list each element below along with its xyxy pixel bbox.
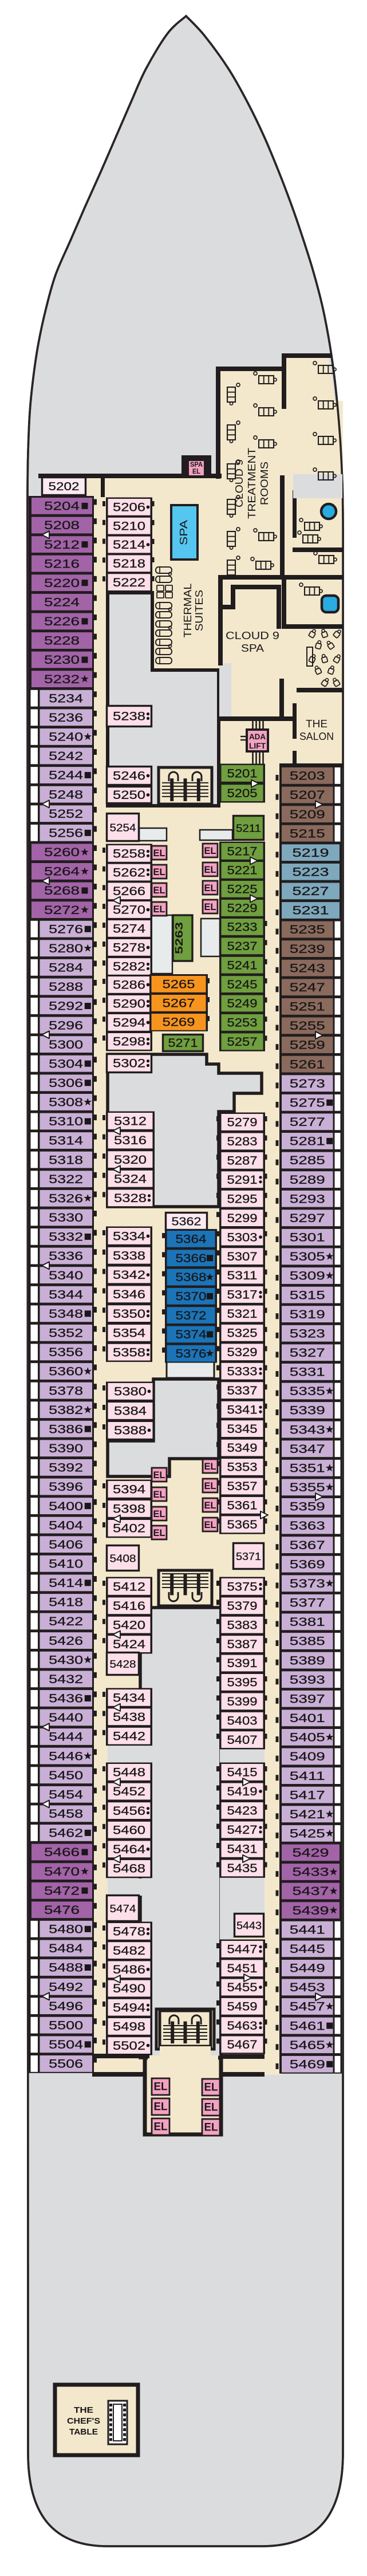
svg-text:5431: 5431 (227, 1843, 258, 1856)
svg-text:5241: 5241 (227, 959, 258, 972)
svg-text:5208: 5208 (44, 519, 80, 532)
svg-text:5284: 5284 (49, 962, 83, 975)
svg-text:5303: 5303 (227, 1231, 258, 1244)
svg-text:5220: 5220 (44, 577, 80, 590)
svg-text:5421: 5421 (290, 1808, 325, 1821)
svg-text:5232: 5232 (44, 673, 80, 686)
svg-text:5304: 5304 (49, 1057, 83, 1070)
svg-text:5316: 5316 (114, 1134, 147, 1147)
svg-text:5453: 5453 (290, 1981, 325, 1994)
svg-text:5490: 5490 (113, 1982, 145, 1995)
svg-text:5457: 5457 (290, 2000, 325, 2014)
svg-text:5202: 5202 (49, 480, 80, 493)
svg-text:5422: 5422 (49, 1615, 83, 1628)
svg-text:5231: 5231 (293, 904, 329, 917)
svg-text:5409: 5409 (290, 1750, 325, 1763)
svg-text:5325: 5325 (227, 1327, 258, 1340)
svg-text:EL: EL (192, 468, 200, 475)
svg-text:5263: 5263 (173, 922, 185, 954)
svg-text:5273: 5273 (290, 1077, 325, 1090)
svg-text:5314: 5314 (49, 1135, 83, 1148)
svg-text:5430: 5430 (49, 1653, 83, 1667)
svg-text:5496: 5496 (49, 2000, 83, 2013)
svg-text:5454: 5454 (49, 1789, 83, 1802)
svg-text:5350: 5350 (113, 1307, 145, 1321)
svg-text:THE: THE (306, 718, 327, 730)
svg-text:5207: 5207 (290, 789, 325, 802)
svg-text:5320: 5320 (114, 1153, 147, 1167)
svg-text:5261: 5261 (290, 1058, 325, 1071)
svg-text:5328: 5328 (114, 1192, 147, 1205)
svg-text:EL: EL (204, 2082, 218, 2094)
svg-text:5250: 5250 (113, 789, 145, 802)
svg-text:5214: 5214 (113, 538, 145, 552)
svg-text:5432: 5432 (49, 1673, 83, 1686)
svg-text:5271: 5271 (168, 1037, 198, 1050)
svg-text:CLOUD 9: CLOUD 9 (226, 630, 279, 641)
svg-text:5385: 5385 (290, 1635, 325, 1648)
svg-text:5283: 5283 (227, 1135, 258, 1148)
svg-text:5330: 5330 (49, 1211, 83, 1224)
svg-text:5500: 5500 (49, 2019, 83, 2032)
svg-text:5404: 5404 (49, 1519, 83, 1532)
svg-text:5229: 5229 (227, 902, 258, 915)
svg-text:5338: 5338 (113, 1249, 145, 1262)
svg-text:5438: 5438 (113, 1711, 145, 1724)
svg-text:5302: 5302 (113, 1057, 145, 1070)
svg-text:5312: 5312 (114, 1115, 147, 1128)
svg-text:EL: EL (153, 1509, 165, 1519)
svg-text:5275: 5275 (290, 1097, 325, 1110)
svg-text:5465: 5465 (290, 2039, 325, 2052)
svg-text:5242: 5242 (49, 750, 83, 763)
svg-text:EL: EL (153, 1528, 165, 1538)
svg-text:5345: 5345 (227, 1423, 258, 1436)
svg-text:5223: 5223 (293, 866, 329, 879)
svg-text:5221: 5221 (227, 864, 258, 877)
svg-text:5268: 5268 (44, 884, 80, 897)
svg-text:5297: 5297 (290, 1212, 325, 1225)
svg-text:5484: 5484 (49, 1942, 83, 1955)
svg-text:5451: 5451 (227, 1962, 258, 1975)
svg-text:5279: 5279 (227, 1116, 258, 1129)
svg-text:5311: 5311 (227, 1269, 258, 1282)
svg-text:5356: 5356 (49, 1346, 83, 1359)
svg-text:5480: 5480 (49, 1923, 83, 1936)
svg-text:5247: 5247 (290, 981, 325, 994)
svg-text:5348: 5348 (49, 1307, 83, 1321)
svg-text:5280: 5280 (49, 942, 83, 955)
svg-text:5368: 5368 (176, 1271, 207, 1284)
svg-text:5352: 5352 (49, 1327, 83, 1340)
svg-text:5375: 5375 (227, 1581, 258, 1594)
svg-text:5354: 5354 (113, 1327, 145, 1340)
svg-text:5244: 5244 (49, 769, 83, 782)
svg-text:5216: 5216 (44, 557, 80, 570)
svg-text:5309: 5309 (290, 1270, 325, 1283)
svg-text:THE: THE (74, 2405, 93, 2415)
svg-text:5266: 5266 (113, 885, 145, 898)
svg-text:5486: 5486 (113, 1963, 145, 1976)
svg-text:5391: 5391 (227, 1657, 258, 1670)
svg-text:5327: 5327 (290, 1346, 325, 1360)
svg-text:5288: 5288 (49, 980, 83, 994)
svg-text:5267: 5267 (163, 997, 195, 1010)
svg-text:5225: 5225 (227, 883, 258, 896)
svg-text:EL: EL (153, 904, 165, 915)
svg-text:5341: 5341 (227, 1403, 258, 1416)
svg-text:5452: 5452 (113, 1785, 145, 1798)
svg-text:5228: 5228 (44, 635, 80, 648)
svg-text:5344: 5344 (49, 1288, 83, 1301)
svg-text:5321: 5321 (227, 1307, 258, 1321)
svg-text:5317: 5317 (227, 1289, 258, 1302)
svg-text:5397: 5397 (290, 1692, 325, 1705)
svg-text:5420: 5420 (113, 1618, 145, 1632)
svg-text:5502: 5502 (113, 2039, 145, 2053)
svg-text:5389: 5389 (290, 1654, 325, 1667)
svg-text:EL: EL (154, 2101, 168, 2113)
svg-text:5333: 5333 (227, 1365, 258, 1378)
svg-text:5351: 5351 (290, 1462, 325, 1475)
svg-text:5265: 5265 (163, 978, 195, 991)
svg-text:5332: 5332 (49, 1231, 83, 1244)
svg-text:THERMAL: THERMAL (182, 584, 194, 638)
svg-text:5426: 5426 (49, 1634, 83, 1648)
svg-text:5504: 5504 (49, 2038, 83, 2051)
svg-text:5353: 5353 (227, 1461, 258, 1474)
svg-text:5340: 5340 (49, 1269, 83, 1282)
svg-text:5298: 5298 (113, 1035, 145, 1049)
svg-text:5238: 5238 (113, 710, 145, 723)
svg-text:5436: 5436 (49, 1692, 83, 1705)
svg-text:5373: 5373 (290, 1577, 325, 1590)
svg-text:5230: 5230 (44, 653, 80, 667)
svg-text:EL: EL (204, 1481, 216, 1491)
svg-text:5274: 5274 (113, 923, 145, 936)
svg-text:5355: 5355 (290, 1481, 325, 1494)
svg-text:5318: 5318 (49, 1153, 83, 1167)
svg-text:5433: 5433 (293, 1866, 329, 1879)
svg-text:5437: 5437 (293, 1885, 329, 1898)
svg-text:5260: 5260 (44, 846, 80, 859)
svg-text:5377: 5377 (290, 1597, 325, 1610)
svg-text:5276: 5276 (49, 923, 83, 936)
svg-text:TREATMENT: TREATMENT (246, 448, 258, 519)
svg-text:5468: 5468 (113, 1862, 145, 1876)
svg-text:5335: 5335 (290, 1385, 325, 1398)
svg-text:5364: 5364 (176, 1233, 207, 1246)
svg-text:5408: 5408 (110, 1553, 136, 1565)
svg-text:5427: 5427 (227, 1823, 258, 1837)
svg-text:5482: 5482 (113, 1944, 145, 1957)
svg-text:5494: 5494 (113, 2001, 145, 2014)
svg-text:5441: 5441 (290, 1923, 325, 1936)
svg-text:5374: 5374 (176, 1328, 207, 1341)
svg-text:EL: EL (153, 867, 165, 877)
svg-text:5336: 5336 (49, 1250, 83, 1263)
svg-text:5349: 5349 (227, 1441, 258, 1455)
svg-text:5428: 5428 (110, 1659, 136, 1670)
svg-text:5210: 5210 (113, 519, 145, 533)
svg-text:5222: 5222 (113, 576, 145, 589)
svg-text:5384: 5384 (114, 1405, 147, 1418)
svg-text:EL: EL (204, 1520, 216, 1530)
svg-text:5396: 5396 (49, 1480, 83, 1494)
svg-text:5467: 5467 (227, 2038, 258, 2051)
svg-text:5315: 5315 (290, 1289, 325, 1302)
svg-text:5376: 5376 (176, 1347, 207, 1360)
svg-text:5492: 5492 (49, 1980, 83, 1994)
svg-text:EL: EL (204, 902, 216, 912)
svg-text:5227: 5227 (293, 885, 329, 898)
svg-text:EL: EL (204, 1462, 216, 1472)
svg-text:5209: 5209 (290, 808, 325, 821)
svg-text:5392: 5392 (49, 1462, 83, 1475)
svg-text:TABLE: TABLE (69, 2427, 98, 2437)
svg-text:5464: 5464 (113, 1843, 145, 1856)
svg-text:SPA: SPA (241, 643, 264, 654)
svg-text:EL: EL (153, 1490, 165, 1500)
svg-text:5425: 5425 (290, 1827, 325, 1841)
svg-text:5378: 5378 (49, 1384, 83, 1397)
svg-text:5285: 5285 (290, 1154, 325, 1167)
svg-text:5388: 5388 (114, 1424, 147, 1437)
svg-text:5291: 5291 (227, 1173, 258, 1187)
svg-text:EL: EL (153, 1470, 165, 1480)
svg-text:5206: 5206 (113, 501, 145, 514)
svg-text:5476: 5476 (44, 1904, 80, 1917)
svg-text:5446: 5446 (49, 1750, 83, 1763)
svg-text:5382: 5382 (49, 1404, 83, 1417)
svg-text:5381: 5381 (290, 1616, 325, 1629)
svg-text:5412: 5412 (113, 1581, 145, 1594)
svg-text:5372: 5372 (176, 1309, 207, 1322)
svg-text:5458: 5458 (49, 1807, 83, 1821)
svg-text:EL: EL (204, 865, 216, 875)
svg-text:5380: 5380 (114, 1385, 147, 1399)
svg-text:5387: 5387 (227, 1638, 258, 1651)
svg-text:5463: 5463 (227, 2019, 258, 2033)
svg-text:5398: 5398 (113, 1503, 145, 1516)
svg-text:5211: 5211 (236, 823, 261, 834)
svg-text:EL: EL (204, 1500, 216, 1511)
svg-text:5219: 5219 (293, 846, 329, 860)
svg-text:5459: 5459 (227, 2000, 258, 2014)
svg-text:5394: 5394 (113, 1483, 145, 1496)
svg-text:5236: 5236 (49, 711, 83, 724)
svg-text:5424: 5424 (113, 1638, 145, 1651)
svg-text:5286: 5286 (113, 979, 145, 992)
svg-text:5366: 5366 (176, 1252, 207, 1265)
svg-text:5386: 5386 (49, 1423, 83, 1436)
svg-text:5400: 5400 (49, 1500, 83, 1513)
svg-text:SPA: SPA (190, 462, 203, 468)
svg-text:5360: 5360 (49, 1365, 83, 1378)
svg-text:5439: 5439 (293, 1904, 329, 1917)
svg-text:5445: 5445 (290, 1943, 325, 1956)
svg-text:5361: 5361 (227, 1499, 258, 1512)
svg-text:5405: 5405 (290, 1731, 325, 1744)
svg-text:5346: 5346 (113, 1288, 145, 1301)
svg-text:5339: 5339 (290, 1404, 325, 1417)
svg-text:5466: 5466 (44, 1846, 80, 1859)
svg-text:5278: 5278 (113, 942, 145, 955)
svg-text:5204: 5204 (44, 500, 80, 513)
svg-text:5277: 5277 (290, 1116, 325, 1129)
svg-text:5240: 5240 (49, 731, 83, 744)
svg-text:5447: 5447 (227, 1943, 258, 1956)
svg-text:5201: 5201 (227, 767, 258, 781)
svg-text:CHEF'S: CHEF'S (67, 2416, 100, 2426)
svg-text:5383: 5383 (227, 1618, 258, 1632)
svg-text:5455: 5455 (227, 1981, 258, 1994)
svg-text:5462: 5462 (49, 1827, 83, 1840)
svg-text:5506: 5506 (49, 2058, 83, 2071)
svg-text:5357: 5357 (227, 1480, 258, 1493)
svg-text:5235: 5235 (290, 923, 325, 936)
svg-text:5370: 5370 (176, 1290, 207, 1303)
svg-text:5342: 5342 (113, 1269, 145, 1282)
svg-text:5379: 5379 (227, 1600, 258, 1613)
svg-text:5287: 5287 (227, 1155, 258, 1168)
svg-text:5371: 5371 (236, 1551, 261, 1562)
svg-text:ADA: ADA (249, 732, 266, 741)
svg-text:5243: 5243 (290, 962, 325, 975)
svg-text:5498: 5498 (113, 2020, 145, 2034)
svg-text:5292: 5292 (49, 1000, 83, 1013)
svg-text:LIFT: LIFT (249, 741, 266, 750)
svg-text:5359: 5359 (290, 1500, 325, 1514)
svg-text:5414: 5414 (49, 1577, 83, 1590)
svg-text:5417: 5417 (290, 1789, 325, 1802)
svg-text:5449: 5449 (290, 1962, 325, 1975)
svg-text:5403: 5403 (227, 1714, 258, 1727)
svg-text:5252: 5252 (49, 808, 83, 821)
svg-text:5415: 5415 (227, 1766, 258, 1779)
svg-text:5296: 5296 (49, 1019, 83, 1032)
svg-text:5324: 5324 (114, 1172, 147, 1185)
svg-text:5456: 5456 (113, 1805, 145, 1818)
svg-text:5358: 5358 (113, 1346, 145, 1359)
svg-text:5460: 5460 (113, 1823, 145, 1837)
svg-text:5469: 5469 (290, 2058, 325, 2071)
svg-text:5444: 5444 (49, 1731, 83, 1744)
svg-text:5411: 5411 (290, 1770, 325, 1783)
svg-text:5217: 5217 (227, 845, 258, 858)
svg-text:5410: 5410 (49, 1558, 83, 1571)
svg-text:5472: 5472 (44, 1884, 80, 1897)
svg-text:5257: 5257 (227, 1035, 258, 1049)
svg-text:5416: 5416 (113, 1600, 145, 1613)
svg-text:5470: 5470 (44, 1865, 80, 1878)
svg-text:5269: 5269 (163, 1016, 195, 1029)
svg-text:5293: 5293 (290, 1192, 325, 1206)
svg-text:SUITES: SUITES (194, 590, 205, 631)
svg-text:EL: EL (153, 885, 165, 896)
svg-text:5262: 5262 (113, 866, 145, 879)
svg-text:EL: EL (204, 883, 216, 893)
svg-text:5434: 5434 (113, 1692, 145, 1705)
svg-text:5478: 5478 (113, 1925, 145, 1939)
svg-text:5299: 5299 (227, 1212, 258, 1225)
svg-text:5310: 5310 (49, 1115, 83, 1128)
svg-text:5264: 5264 (44, 865, 80, 879)
svg-text:5393: 5393 (290, 1673, 325, 1687)
svg-text:5270: 5270 (113, 904, 145, 917)
svg-text:5343: 5343 (290, 1423, 325, 1436)
svg-text:EL: EL (154, 2121, 168, 2133)
svg-text:5306: 5306 (49, 1077, 83, 1090)
svg-text:ROOMS: ROOMS (259, 462, 270, 505)
svg-text:5323: 5323 (290, 1327, 325, 1340)
svg-text:5331: 5331 (290, 1366, 325, 1379)
svg-text:5395: 5395 (227, 1676, 258, 1689)
svg-text:5226: 5226 (44, 615, 80, 628)
svg-text:5347: 5347 (290, 1443, 325, 1456)
svg-text:5218: 5218 (113, 557, 145, 570)
svg-text:5390: 5390 (49, 1442, 83, 1455)
svg-text:5255: 5255 (290, 1019, 325, 1033)
svg-text:5246: 5246 (113, 770, 145, 783)
svg-text:EL: EL (204, 2122, 218, 2134)
svg-text:5248: 5248 (49, 788, 83, 801)
svg-text:5239: 5239 (290, 943, 325, 956)
svg-text:5442: 5442 (113, 1730, 145, 1743)
svg-text:5300: 5300 (49, 1038, 83, 1051)
svg-text:5474: 5474 (110, 1903, 136, 1915)
svg-text:5259: 5259 (290, 1039, 325, 1052)
svg-text:5294: 5294 (113, 1017, 145, 1030)
svg-text:5423: 5423 (227, 1805, 258, 1818)
svg-text:5308: 5308 (49, 1096, 83, 1109)
svg-text:5305: 5305 (290, 1250, 325, 1263)
svg-text:5419: 5419 (227, 1785, 258, 1798)
svg-text:5429: 5429 (293, 1846, 329, 1860)
svg-text:5334: 5334 (113, 1230, 145, 1243)
svg-text:5440: 5440 (49, 1711, 83, 1724)
svg-text:5237: 5237 (227, 940, 258, 953)
svg-text:5295: 5295 (227, 1192, 258, 1206)
svg-text:5443: 5443 (236, 1920, 262, 1932)
svg-text:5289: 5289 (290, 1173, 325, 1187)
svg-text:5212: 5212 (44, 538, 80, 552)
svg-text:5282: 5282 (113, 960, 145, 974)
svg-text:5369: 5369 (290, 1558, 325, 1571)
svg-text:5307: 5307 (227, 1250, 258, 1263)
svg-text:5448: 5448 (113, 1766, 145, 1779)
svg-text:5365: 5365 (227, 1518, 258, 1531)
svg-text:5402: 5402 (113, 1522, 145, 1535)
svg-text:5233: 5233 (227, 921, 258, 934)
svg-text:5272: 5272 (44, 904, 80, 917)
svg-text:5435: 5435 (227, 1862, 258, 1875)
svg-text:5258: 5258 (113, 848, 145, 861)
svg-text:5418: 5418 (49, 1596, 83, 1609)
svg-text:5249: 5249 (227, 997, 258, 1010)
svg-text:5399: 5399 (227, 1695, 258, 1708)
svg-text:SALON: SALON (299, 731, 334, 742)
svg-text:5205: 5205 (227, 787, 258, 800)
svg-text:5401: 5401 (290, 1712, 325, 1725)
svg-text:5245: 5245 (227, 978, 258, 991)
svg-text:5256: 5256 (49, 827, 83, 840)
svg-text:5290: 5290 (113, 998, 145, 1011)
svg-text:EL: EL (204, 846, 216, 856)
svg-text:5253: 5253 (227, 1017, 258, 1030)
svg-text:5319: 5319 (290, 1308, 325, 1321)
svg-text:5488: 5488 (49, 1961, 83, 1975)
